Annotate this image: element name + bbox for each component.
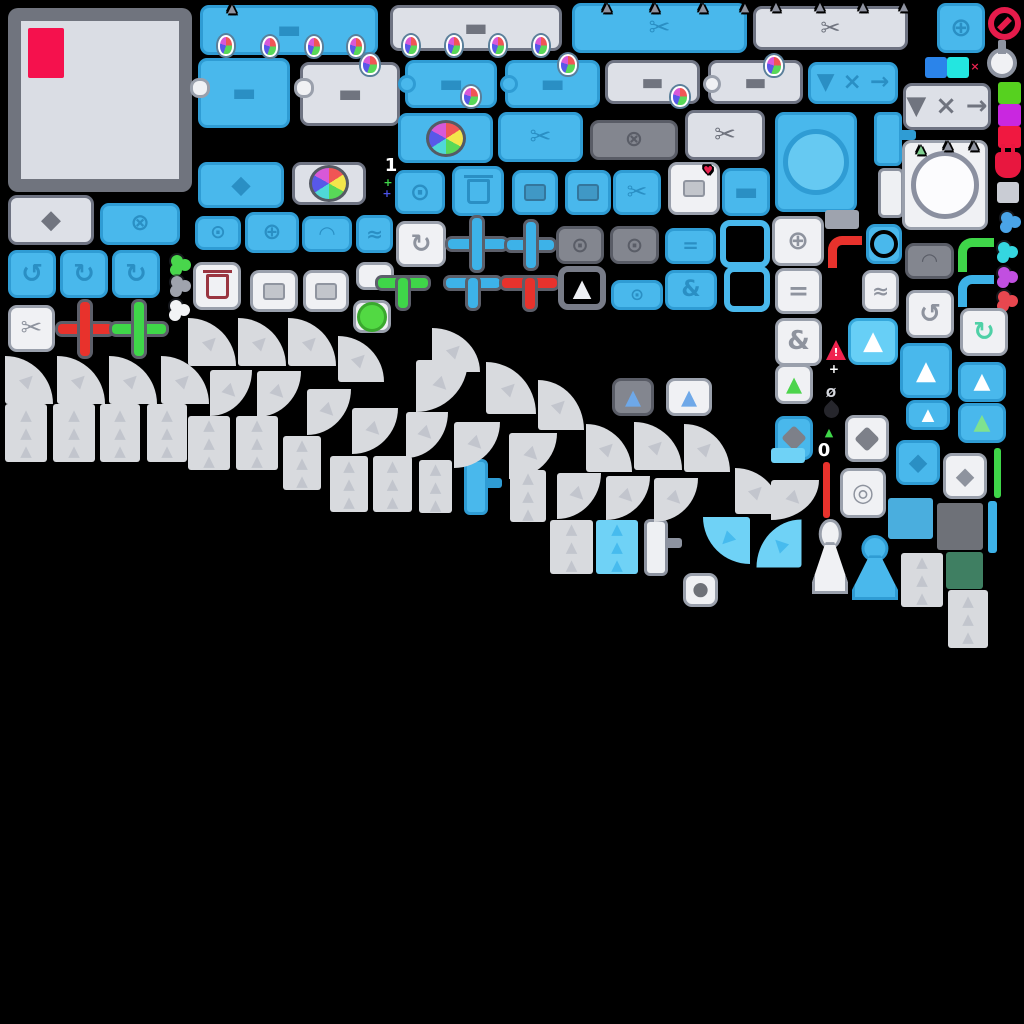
belt-blue-partial	[771, 448, 805, 463]
bowtie-icon: ⊗	[130, 212, 149, 235]
elbow-green	[958, 238, 994, 272]
belt-curve-blue	[703, 517, 750, 564]
belt-curve-gray	[634, 422, 682, 470]
display-gray-circle: ●	[683, 573, 718, 607]
storage-blue-2	[565, 170, 611, 215]
cluster-white	[165, 297, 187, 315]
arrow-decor: ▲	[940, 139, 956, 152]
belt-curve-gray	[538, 380, 584, 430]
belt-straight-gray	[5, 404, 47, 462]
rainbow-droplet-icon	[462, 86, 480, 107]
amp-icon: &	[681, 279, 700, 301]
plug-red	[995, 152, 1021, 178]
target-icon: ⊙	[210, 224, 226, 243]
painter-gray-3: ▬	[708, 60, 803, 104]
roller-icon: ▬	[744, 70, 767, 94]
hexnub-1	[190, 78, 210, 98]
and-gate-blue: &	[665, 270, 717, 310]
cluster-red	[992, 287, 1016, 307]
trash-blue	[452, 166, 504, 216]
pipe-blue-vertical	[874, 112, 902, 166]
ring-icon	[911, 151, 979, 219]
rainbow-droplet-icon	[361, 54, 379, 75]
droplet	[218, 36, 234, 54]
pipe-white-vertical	[878, 168, 904, 218]
rotator-blue-cw: ↻	[112, 250, 160, 298]
belt-curve-gray	[684, 424, 730, 472]
elbow-red	[828, 236, 862, 268]
compare-blue: =	[665, 228, 716, 264]
prohibition-sign	[988, 7, 1021, 40]
belt-curve-gray	[654, 478, 698, 522]
display-outline-blue-2	[724, 266, 770, 312]
hub-base	[8, 8, 192, 192]
painter-gray-1: ▬	[300, 62, 400, 126]
pump-blue	[464, 459, 488, 515]
bowtie-dark: ⊗	[590, 120, 678, 160]
belt-curve-gray	[606, 476, 650, 520]
hexnub-3	[398, 75, 416, 93]
warning-red: !	[826, 340, 846, 360]
mixer-x-blue: ⊗	[100, 203, 180, 245]
rot-cw-icon: ↻	[410, 231, 431, 256]
stack-icon: ◆	[956, 464, 975, 488]
ringblue-icon	[783, 129, 849, 195]
x-mark-red: ×	[966, 57, 984, 75]
belt-straight-blue	[596, 520, 638, 574]
gauge-icon: ◠	[922, 251, 937, 271]
tri-icon: ▲	[603, 2, 611, 13]
roller-icon: ▬	[464, 15, 488, 40]
label-0-text: 0	[818, 442, 831, 460]
rotator-white-teal: ↻	[960, 308, 1008, 356]
droplet	[490, 36, 506, 54]
belt-curve-gray	[188, 318, 236, 366]
scissors-icon: ✂	[820, 16, 840, 40]
belt-curve-gray	[57, 356, 105, 404]
crate-gray-small	[997, 182, 1019, 203]
arrow-decor: ▲	[768, 0, 784, 13]
mixer-gray	[292, 162, 366, 205]
target-icon: ⊙	[630, 287, 644, 304]
wire-cross-green	[112, 302, 166, 356]
roller-icon: ▬	[641, 70, 664, 94]
arrow-decor: ▲	[966, 139, 982, 152]
target-icon: ⊙	[410, 180, 430, 204]
belt-curve-gray	[307, 389, 351, 435]
belt-straight-gray	[236, 416, 278, 470]
crate-gray	[825, 210, 859, 229]
roller-icon: ▬	[734, 179, 759, 205]
pulse-icon: ≈	[366, 224, 383, 244]
tri-icon: ▲	[699, 2, 707, 13]
droplet	[671, 86, 689, 106]
cluster-cyan	[992, 237, 1016, 259]
wire-plus-blue	[507, 222, 554, 268]
splitter-blue: ⊙	[195, 216, 241, 250]
sender-blue: ▲	[900, 343, 952, 398]
and-gate-gray: &	[775, 318, 822, 366]
rainbow-droplet-icon	[490, 35, 506, 56]
gauge-dark: ◠	[905, 243, 954, 279]
roller-icon: ▬	[338, 81, 363, 107]
belt-curve-gray	[557, 473, 601, 519]
eq-icon: =	[682, 236, 699, 256]
rot-cw-icon: ↻	[973, 319, 995, 345]
rainbow-droplet-icon	[306, 36, 322, 57]
star-arrow-green: ▲	[912, 141, 930, 157]
scissors-icon: ✂	[21, 316, 43, 342]
cutter-gray: ✂	[685, 110, 765, 160]
tri-icon: ▲	[917, 144, 925, 155]
tri-icon: ▲	[625, 387, 641, 408]
eq-gate-gray: =	[775, 268, 822, 314]
plus-icon: +	[382, 188, 391, 199]
wire-cross-red	[58, 302, 112, 356]
swatch-green	[998, 82, 1021, 104]
target-icon: ⊙	[571, 235, 589, 256]
rotator-white-cw: ↻	[396, 221, 446, 267]
belt-curve-gray	[210, 370, 252, 416]
grill-icon: ⊕	[950, 15, 972, 41]
droplet	[533, 36, 549, 54]
droplet	[306, 37, 322, 55]
rot-ccw-icon: ↺	[21, 261, 43, 287]
scissors-icon: ✂	[714, 122, 736, 148]
tri-icon: ▲	[970, 140, 978, 151]
underground-exit-white: ▲	[775, 364, 813, 404]
stacker-blue: ◆	[198, 162, 284, 208]
belt-curve-gray	[586, 424, 632, 472]
arrow-decor: ▲	[855, 0, 871, 13]
belt-straight-gray	[901, 553, 943, 607]
tri-icon: ▲	[573, 276, 592, 300]
rgb-icon	[426, 120, 466, 157]
droplet	[361, 54, 379, 74]
wire-cross-blue	[448, 218, 506, 270]
scissors-icon: ✂	[627, 180, 648, 205]
belt-curve-gray	[238, 318, 286, 366]
wire-t-blue	[446, 272, 500, 308]
belt-straight-gray	[53, 404, 95, 462]
bar-green	[994, 448, 1001, 498]
pulse-gray: ≈	[862, 270, 899, 312]
tri-icon: ▲	[863, 329, 883, 355]
painter-blue-right: ▬	[198, 58, 290, 128]
toolbox-white: ◎	[840, 468, 886, 518]
crate-icon	[315, 283, 337, 300]
balls-blue	[995, 208, 1019, 228]
belt-straight-gray	[419, 460, 452, 513]
heart-red: ♥	[700, 162, 716, 178]
swatch-magenta	[998, 104, 1021, 126]
plus-icon: +	[829, 363, 839, 375]
rainbow-droplet-icon	[446, 35, 462, 56]
arrow-decor: ▲	[646, 0, 664, 14]
tri-icon: ▲	[228, 3, 236, 14]
rgb-icon	[309, 165, 349, 202]
wire-t-red	[502, 272, 557, 309]
cutter-white-small: ✂	[8, 305, 55, 352]
target-icon: ⊙	[626, 235, 644, 256]
crate-icon	[577, 184, 599, 201]
filter-blue: ▼ × →	[808, 62, 898, 104]
crate-icon	[263, 283, 285, 300]
droplet	[262, 37, 278, 55]
belt-straight-gray	[283, 436, 321, 490]
belt-curve-gray	[771, 480, 819, 520]
cluster-gray	[166, 272, 188, 292]
droplet	[559, 54, 577, 74]
dot-icon: ●	[692, 581, 708, 600]
rot-cw-icon: ↻	[73, 261, 95, 287]
plus-blue: +	[380, 186, 394, 200]
tri-icon: ▲	[859, 1, 867, 12]
wrench-icon: ◎	[852, 480, 874, 505]
belt-straight-gray	[550, 520, 593, 574]
pulse-icon: ≈	[872, 281, 889, 301]
arrow-decor: ▲	[812, 0, 828, 13]
arrow-green: ▲	[821, 424, 837, 440]
droplet	[403, 36, 419, 54]
rotator-white-ccw: ↺	[906, 290, 954, 338]
underground-entry-white: ▲	[666, 378, 712, 416]
grill-icon: ⊕	[263, 221, 282, 244]
hexnub-4	[500, 75, 518, 93]
belt-curve-gray	[338, 336, 384, 382]
pump-white	[644, 519, 668, 576]
wire-t-green	[378, 272, 428, 308]
roller-icon: ▬	[439, 71, 464, 97]
storage-gray-2	[303, 270, 349, 312]
underground-entry-dark: ▲	[612, 378, 654, 416]
tri-icon: ▲	[825, 427, 833, 438]
rot-ccw-icon: ↺	[919, 301, 941, 327]
belt-curve-gray	[257, 371, 301, 417]
bar-blue	[988, 501, 997, 553]
cluster-green	[166, 252, 188, 270]
roller-icon: ▬	[232, 80, 257, 106]
hexnub-2	[294, 78, 314, 98]
arrow-decor: ▲	[222, 0, 242, 16]
roller-icon: ▬	[277, 17, 302, 43]
belt-straight-gray	[100, 404, 140, 462]
label-1: 1	[383, 156, 399, 176]
hexnub-5	[703, 75, 721, 93]
tri-icon: ▲	[816, 1, 824, 12]
tri-icon: ▲	[900, 1, 908, 12]
trash-white	[193, 262, 241, 310]
belt-straight-gray	[188, 416, 230, 470]
eq-icon: =	[788, 278, 809, 303]
hex-machine-white: ◆	[943, 453, 987, 499]
arrow-decor: ▲	[694, 0, 712, 14]
scissors-icon: ✂	[649, 15, 671, 41]
sprite-atlas-canvas: ▬▬✂✂⊕▬▬▬▬▬▬▼ × →▼ × →✂⊗✂×▲◆⊗◆++⊙✂♥▬⊕⊙⊕◠≈…	[0, 0, 1024, 1024]
rainbow-droplet-icon	[218, 35, 234, 56]
belt-straight-gray	[147, 404, 187, 462]
mixer-blue	[398, 113, 493, 163]
filter-gray: ▼ × →	[903, 83, 991, 130]
belt-curve-gray	[406, 412, 448, 458]
stack-icon: ◆	[909, 450, 928, 474]
belt-curve-gray	[5, 356, 53, 404]
belt-straight-gray	[373, 456, 412, 512]
gauge-icon: ◠	[319, 224, 334, 244]
funnelx-icon: ▼ × →	[817, 71, 890, 94]
crate-icon	[683, 180, 705, 197]
pulse-blue: ≈	[356, 215, 393, 253]
cube-icon	[854, 426, 879, 451]
tunnel-trapezoid-blue-2: ▲	[958, 403, 1006, 443]
dome-blue: ⊕	[245, 212, 299, 253]
arrow-decor: ▲	[736, 0, 754, 14]
gate-blue: ⊙	[611, 280, 663, 310]
reader-dark-1: ⊙	[556, 226, 604, 264]
storage-blue-1	[512, 170, 558, 215]
arrow-decor: ▲	[896, 0, 912, 13]
swatch-blue	[925, 57, 947, 78]
cutter-blue: ✂	[498, 112, 583, 162]
valve-blue	[866, 224, 902, 264]
square-teal	[946, 552, 983, 589]
hex-machine-blue: ◆	[896, 440, 940, 485]
label-0: 0	[815, 441, 833, 461]
painter-blue-2: ▬	[405, 60, 497, 108]
stack-icon: ◆	[231, 172, 250, 197]
reader-dark-2: ⊙	[610, 226, 659, 264]
filter-top-blue: ⊕	[937, 3, 985, 53]
gauge-blue: ◠	[302, 216, 352, 252]
belt-straight-gray	[948, 590, 988, 648]
rainbow-droplet-icon	[262, 36, 278, 57]
cube-icon	[781, 425, 806, 450]
belt-curve-gray	[288, 318, 336, 366]
tri-icon: ▲	[772, 1, 780, 12]
rainbow-droplet-icon	[559, 54, 577, 75]
heart-icon: ♥	[703, 165, 713, 176]
elbow-blue	[958, 275, 994, 307]
storage-gray-1	[250, 270, 298, 312]
droplet	[765, 55, 783, 75]
cluster-purple	[992, 262, 1016, 284]
funnel-white	[812, 522, 848, 594]
label-1-text: 1	[385, 157, 398, 175]
cube-machine-white	[845, 415, 889, 462]
trash-icon	[206, 274, 229, 299]
belt-curve-gray	[416, 360, 468, 412]
display-glossy-blue: ▲	[848, 318, 898, 365]
ringsm-icon	[870, 230, 898, 258]
scissors-icon: ✂	[530, 124, 552, 150]
grill-icon: ⊕	[787, 228, 809, 254]
tri-icon: ▲	[974, 371, 991, 393]
square-dark	[937, 503, 983, 550]
trash-icon	[467, 179, 490, 204]
funnelx-icon: ▼ × →	[906, 94, 987, 120]
dome-white: ⊕	[772, 216, 824, 266]
stacker-gray: ◆	[8, 195, 94, 245]
reader-blue: ⊙	[395, 170, 445, 214]
belt-curve-gray	[352, 408, 398, 454]
star-white: +	[822, 358, 846, 380]
funnel-blue	[852, 538, 898, 600]
slash-icon: Ø	[826, 387, 836, 399]
droplet	[462, 86, 480, 106]
droplet	[446, 36, 462, 54]
stack-icon: ◆	[41, 207, 61, 233]
belt-straight-gray	[330, 456, 368, 512]
belt-curve-gray	[454, 422, 500, 468]
square-blue	[888, 498, 933, 539]
big-circle-machine-blue	[775, 112, 857, 212]
cutter-blue-small: ✂	[613, 170, 661, 215]
tri-icon: ▲	[741, 2, 749, 13]
rainbow-droplet-icon	[403, 35, 419, 56]
tri-icon: ▲	[916, 358, 936, 384]
bowtie-icon: ⊗	[625, 129, 643, 151]
tri-icon: ▲	[651, 2, 659, 13]
rotator-blue-ccw: ↺	[8, 250, 56, 298]
x-icon: ×	[970, 61, 979, 72]
tunnel-trapezoid-blue-1: ▲	[958, 362, 1006, 402]
belt-curve-gray	[109, 356, 157, 404]
excl-icon: !	[833, 347, 838, 358]
tri-icon: ▲	[681, 387, 697, 408]
tri-icon: ▲	[786, 374, 802, 395]
rainbow-droplet-icon	[671, 86, 689, 107]
display-outline-blue	[720, 220, 770, 268]
rainbow-droplet-icon	[765, 55, 783, 76]
painter-blue-3: ▬	[505, 60, 600, 108]
arrow-decor: ▲	[598, 0, 616, 14]
tunnel-outline-gray: ▲	[558, 266, 606, 310]
roller-icon: ▬	[540, 71, 565, 97]
belt-curve-gray	[486, 362, 536, 414]
amp-icon: &	[787, 329, 810, 355]
tri-square-blue: ▲	[906, 400, 950, 430]
lever-switch	[988, 40, 1016, 78]
belt-straight-gray	[510, 470, 546, 522]
rainbow-droplet-icon	[533, 35, 549, 56]
rotator-blue-180: ↻	[60, 250, 108, 298]
tri-icon: ▲	[944, 140, 952, 151]
bar-red	[823, 462, 830, 518]
belt-curve-blue	[757, 520, 802, 568]
crate-icon	[524, 184, 546, 201]
droplet	[348, 37, 364, 55]
tri-icon: ▲	[922, 407, 935, 424]
tri-icon: ▲	[974, 412, 991, 434]
painter-blue-small: ▬	[722, 168, 770, 216]
rot-cw-icon: ↻	[125, 261, 147, 287]
